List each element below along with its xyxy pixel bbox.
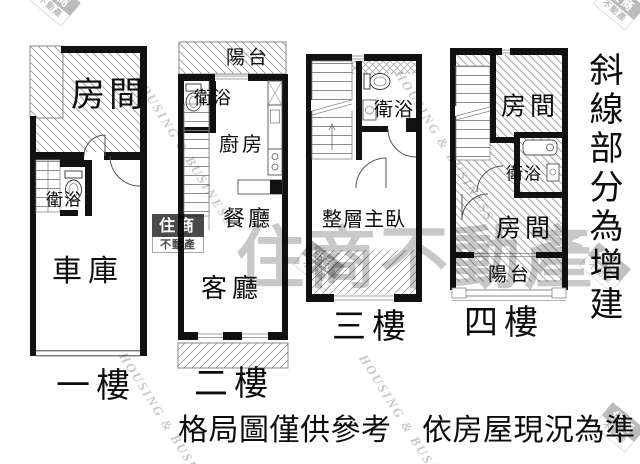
floor-plan-sheet: 房間 衛浴 車庫 [0,0,640,464]
brand-logo-watermark: 住商 不動產 [593,0,640,30]
floor-plan-3f: 衛浴 整層主臥 [306,54,422,306]
floor-label-1f: 一樓 [56,369,136,403]
toilet-icon [364,74,390,90]
floor-plan-1f: 房間 衛浴 車庫 [28,44,153,364]
disclaimer: 格局圖僅供參考 依房屋現況為準 [178,416,636,446]
room-label-balcony: 陽台 [226,49,270,68]
door-arc-icon [356,158,386,188]
window-icon [334,296,394,300]
room-label-balcony: 陽台 [488,266,532,285]
room-label-garage: 車庫 [52,257,124,287]
floor-label-2f: 二樓 [194,367,274,401]
room-label-bathroom: 衛浴 [374,101,414,120]
door-arc-icon [388,129,416,157]
room-label-bathroom: 衛浴 [194,90,232,108]
hatch-note: 斜線部分為增建 [586,52,620,325]
stairs-icon [455,66,491,160]
room-label-bedroom-2: 房間 [496,216,554,241]
sink-icon [547,164,559,181]
room-label-kitchen: 廚房 [219,134,265,154]
room-label-bathroom: 衛浴 [506,167,542,184]
room-label-master-bedroom: 整層主臥 [322,209,406,229]
room-label-bedroom: 房間 [71,78,147,112]
room-label-living: 客廳 [201,276,263,302]
floor-label-3f: 三樓 [332,310,412,344]
brand-logo-watermark: 住商 不動產 [29,0,81,26]
bathtub-icon [523,140,557,155]
garage-door-icon [36,350,140,356]
floor-plan-2f: 陽台 衛浴 廚房 餐廳 客廳 [176,40,290,370]
balcony-rail-icon [452,288,566,301]
floor-plan-4f: 房間 衛浴 房間 陽台 [450,48,568,302]
room-label-bathroom: 衛浴 [46,193,82,210]
stairs-icon [311,61,353,159]
room-label-bedroom: 房間 [501,94,559,119]
door-arc-icon [110,156,140,186]
floor-label-4f: 四樓 [464,306,544,340]
floor-plan-3f-drawing [306,54,422,306]
room-label-dining: 餐廳 [223,209,273,231]
